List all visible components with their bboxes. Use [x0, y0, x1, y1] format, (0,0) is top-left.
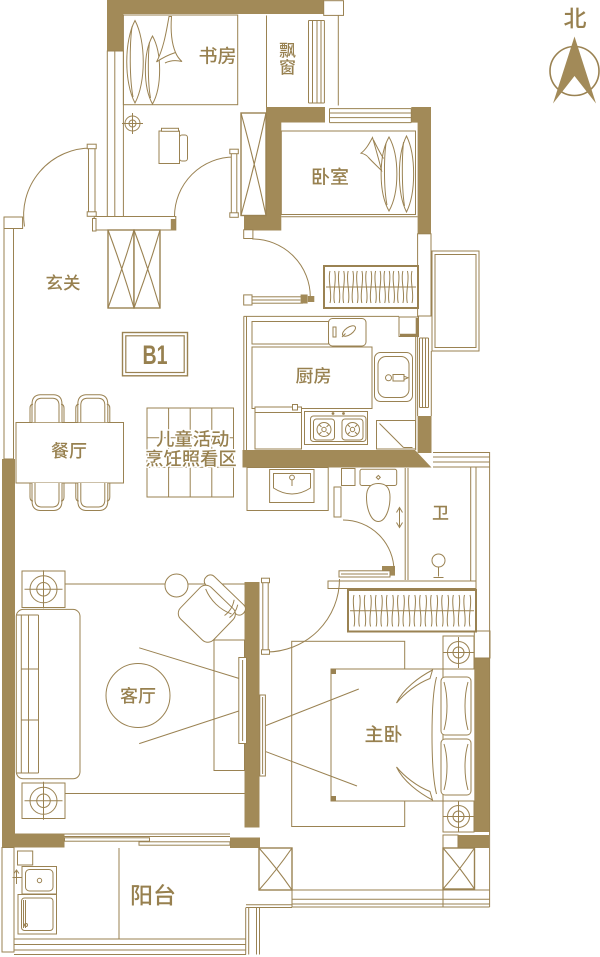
- svg-text:B1: B1: [143, 340, 168, 370]
